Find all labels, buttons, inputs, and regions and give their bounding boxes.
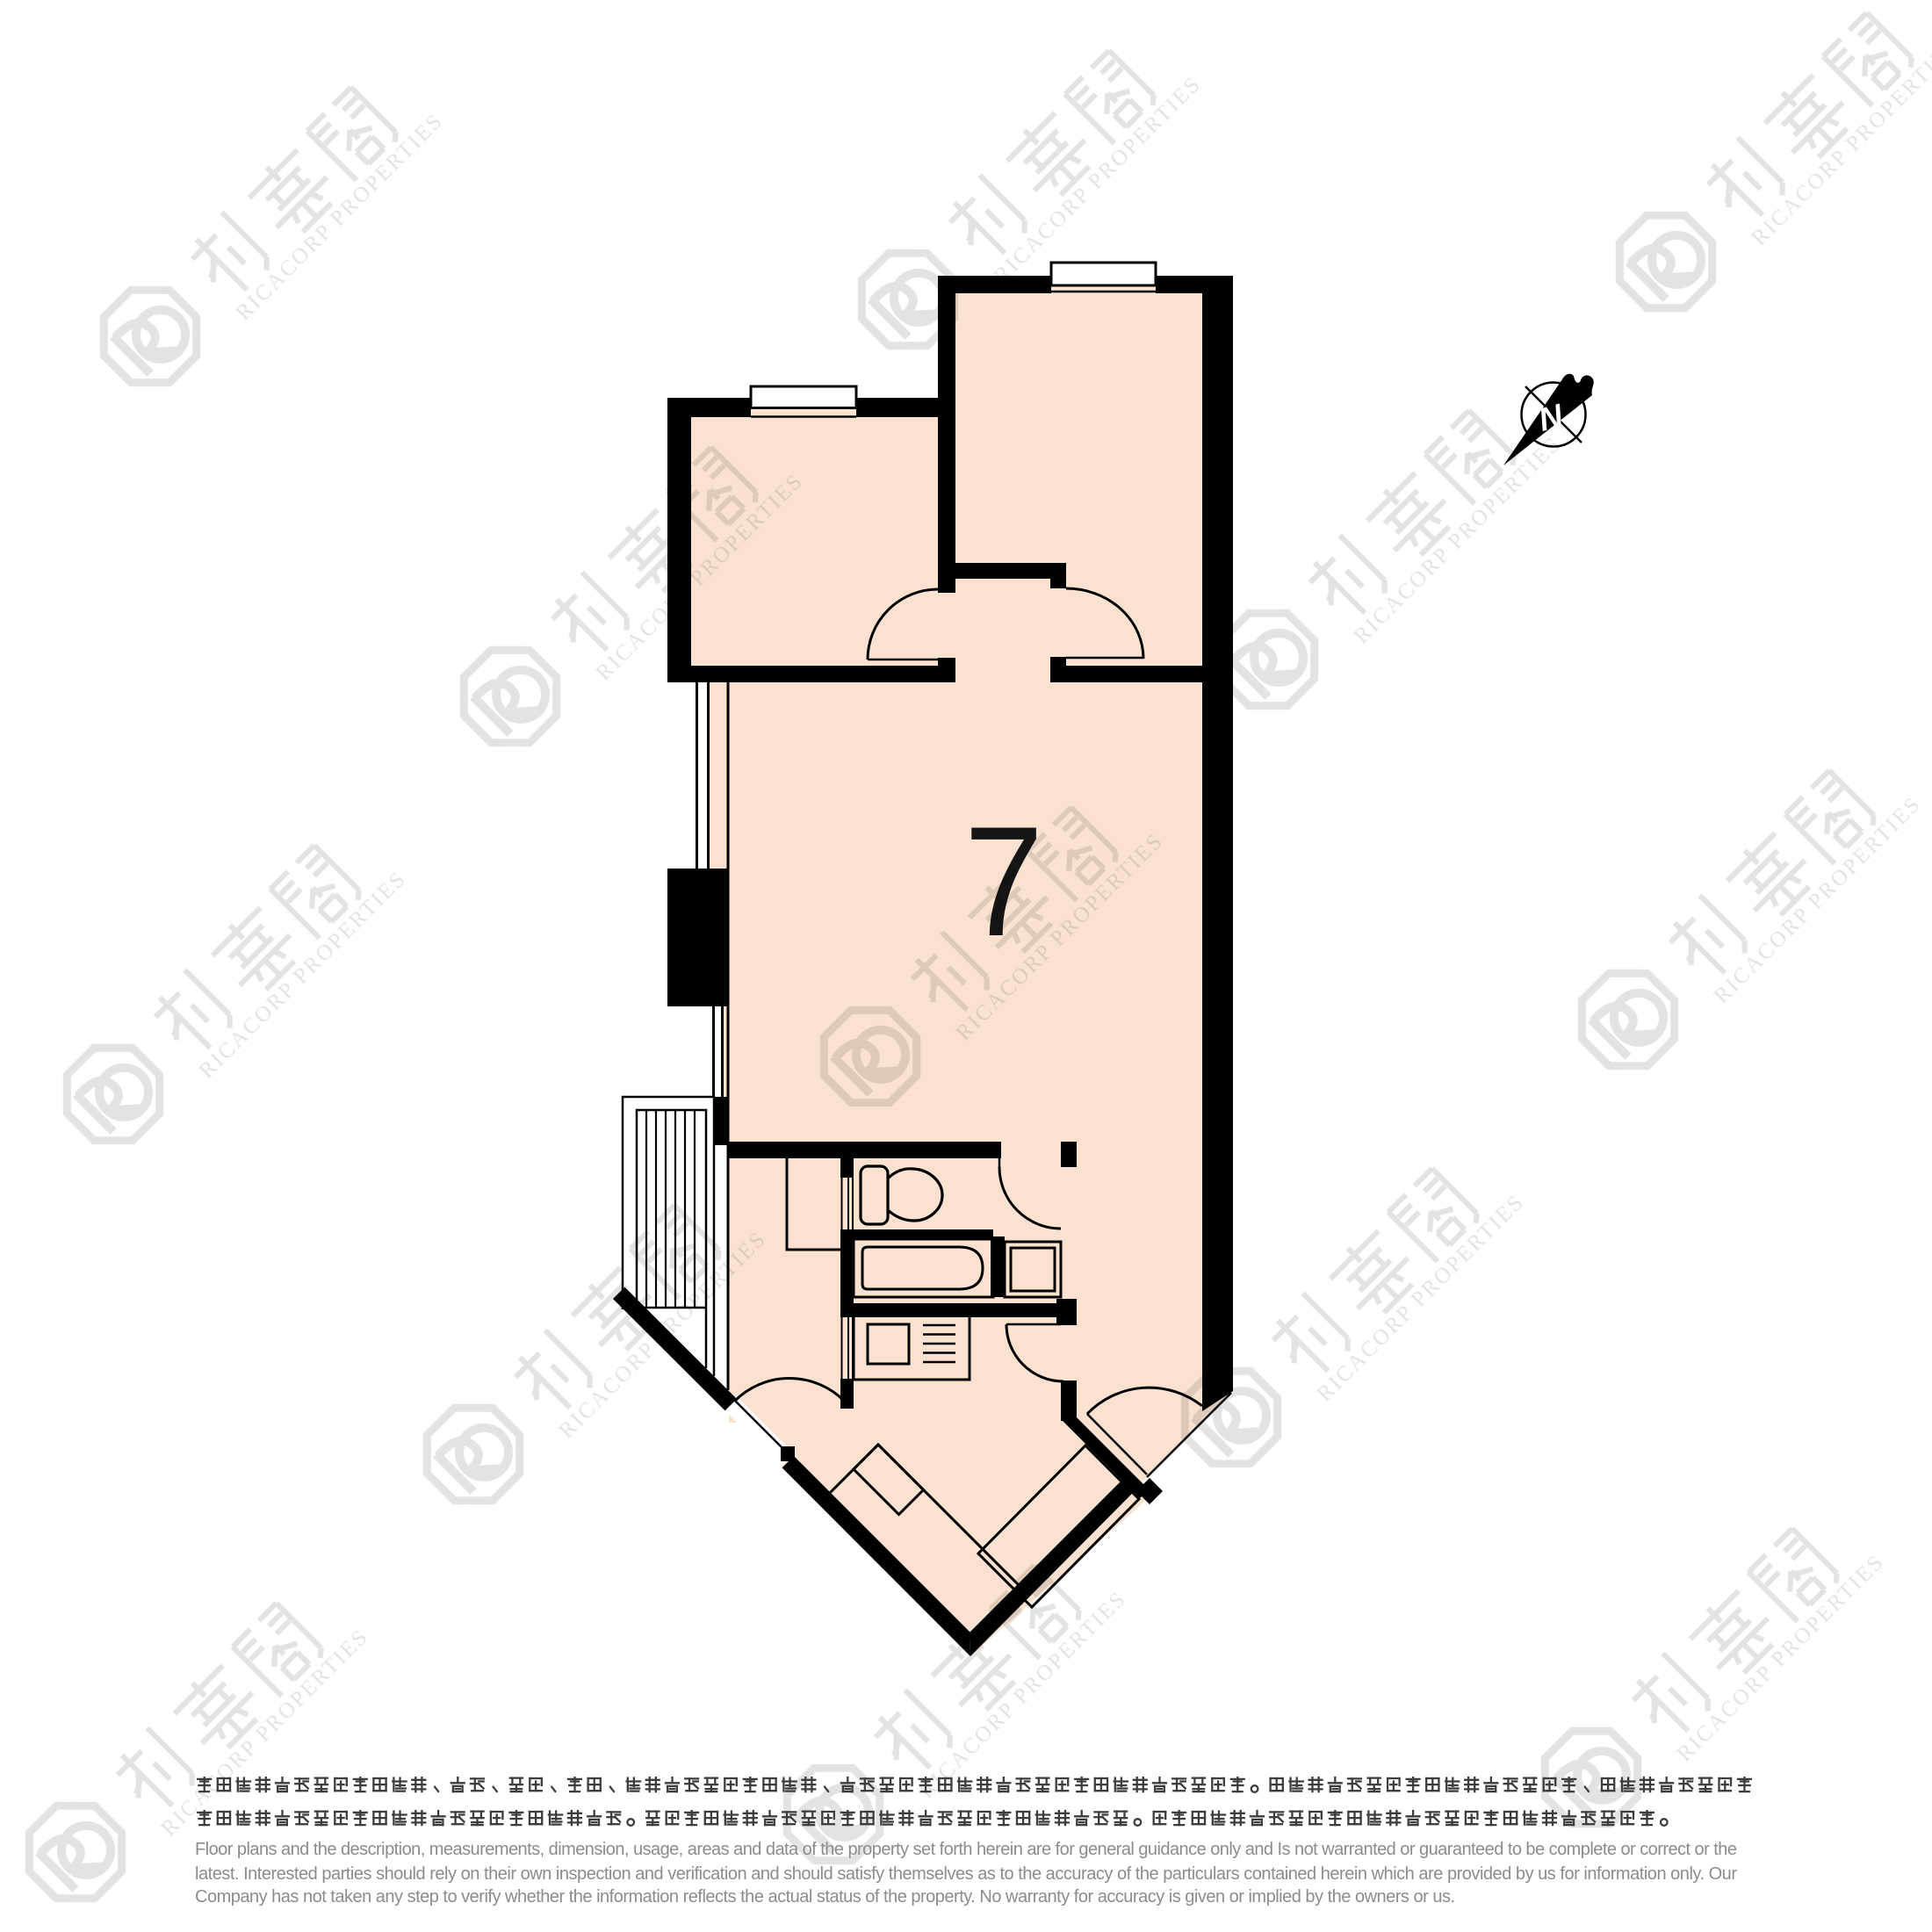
svg-text:Company has not taken any step: Company has not taken any step to verify… [195,1887,1455,1907]
svg-text:Floor plans and the descriptio: Floor plans and the description, measure… [195,1840,1737,1859]
svg-text:latest. Interested parties sho: latest. Interested parties should rely o… [195,1864,1737,1884]
